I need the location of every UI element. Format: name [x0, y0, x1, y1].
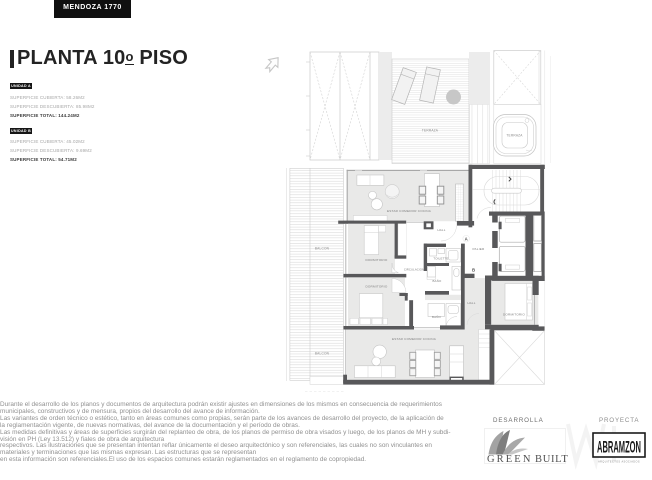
- svg-text:ESTAR COMEDOR COCINA: ESTAR COMEDOR COCINA: [392, 337, 437, 341]
- svg-text:ESTAR COMEDOR COCINA: ESTAR COMEDOR COCINA: [387, 209, 432, 213]
- svg-text:A: A: [465, 236, 468, 241]
- svg-text:CIRCULACION: CIRCULACION: [404, 268, 424, 272]
- svg-text:DORMITORIO: DORMITORIO: [503, 312, 525, 316]
- svg-text:TERRAZA: TERRAZA: [422, 129, 439, 133]
- svg-text:TERRAZA: TERRAZA: [506, 134, 523, 138]
- svg-text:HALL: HALL: [437, 228, 445, 232]
- svg-text:BAÑO: BAÑO: [432, 314, 442, 319]
- svg-text:DORMITORIO: DORMITORIO: [365, 258, 387, 262]
- svg-text:GREEN: GREEN: [487, 454, 533, 465]
- svg-text:DORMITORIO: DORMITORIO: [365, 285, 387, 289]
- svg-text:BALCON: BALCON: [315, 247, 330, 251]
- svg-text:PALIER: PALIER: [473, 247, 486, 251]
- svg-text:BAÑO: BAÑO: [433, 278, 443, 283]
- svg-text:ABRAMZON: ABRAMZON: [597, 438, 641, 457]
- svg-text:ARQUITECTOS ASOCIADOS: ARQUITECTOS ASOCIADOS: [598, 461, 640, 464]
- svg-text:TOILETTE: TOILETTE: [433, 257, 448, 261]
- svg-text:BALCON: BALCON: [315, 352, 330, 356]
- svg-text:B: B: [472, 268, 475, 273]
- svg-text:HALL: HALL: [467, 301, 475, 305]
- svg-text:BUILT: BUILT: [535, 454, 568, 465]
